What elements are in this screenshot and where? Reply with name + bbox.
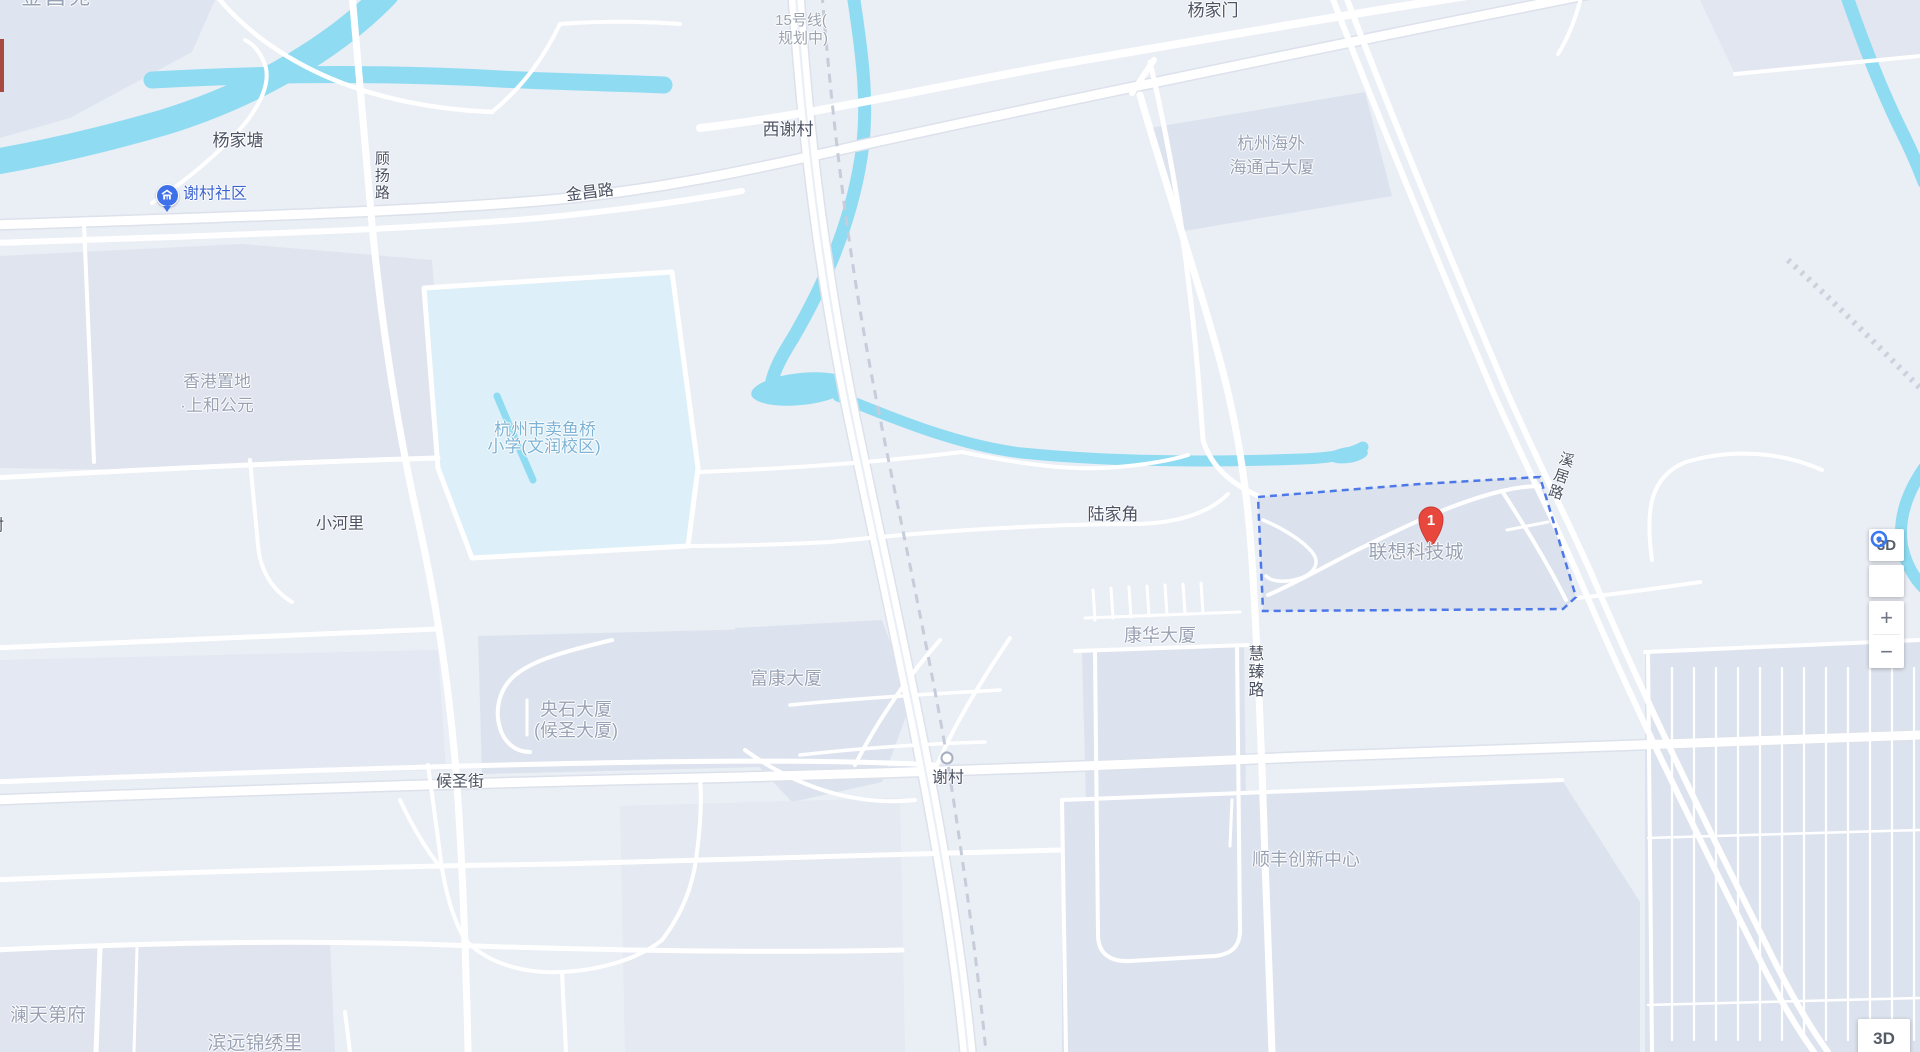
clipped-edge-poi-icon — [0, 39, 4, 92]
planned-station-marker — [942, 753, 953, 764]
pin-number: 1 — [1427, 512, 1435, 529]
map-graphics: 1 — [0, 0, 1920, 1052]
community-building-icon[interactable] — [156, 184, 179, 207]
view-3d-bottom-button[interactable]: 3D — [1858, 1019, 1910, 1052]
locate-button[interactable] — [1869, 565, 1904, 597]
school-grounds — [424, 272, 698, 558]
zoom-control: + − — [1869, 601, 1904, 668]
locate-target-icon — [1869, 529, 1889, 549]
map-control-stack: 3D + − — [1869, 529, 1904, 668]
zoom-in-button[interactable]: + — [1869, 601, 1904, 634]
zoom-out-button[interactable]: − — [1869, 635, 1904, 668]
map-canvas[interactable]: 1 金昌苑杨家塘谢村社区顾扬路金昌路西谢村15号线(规划中)杨家门杭州海外海通古… — [0, 0, 1920, 1052]
